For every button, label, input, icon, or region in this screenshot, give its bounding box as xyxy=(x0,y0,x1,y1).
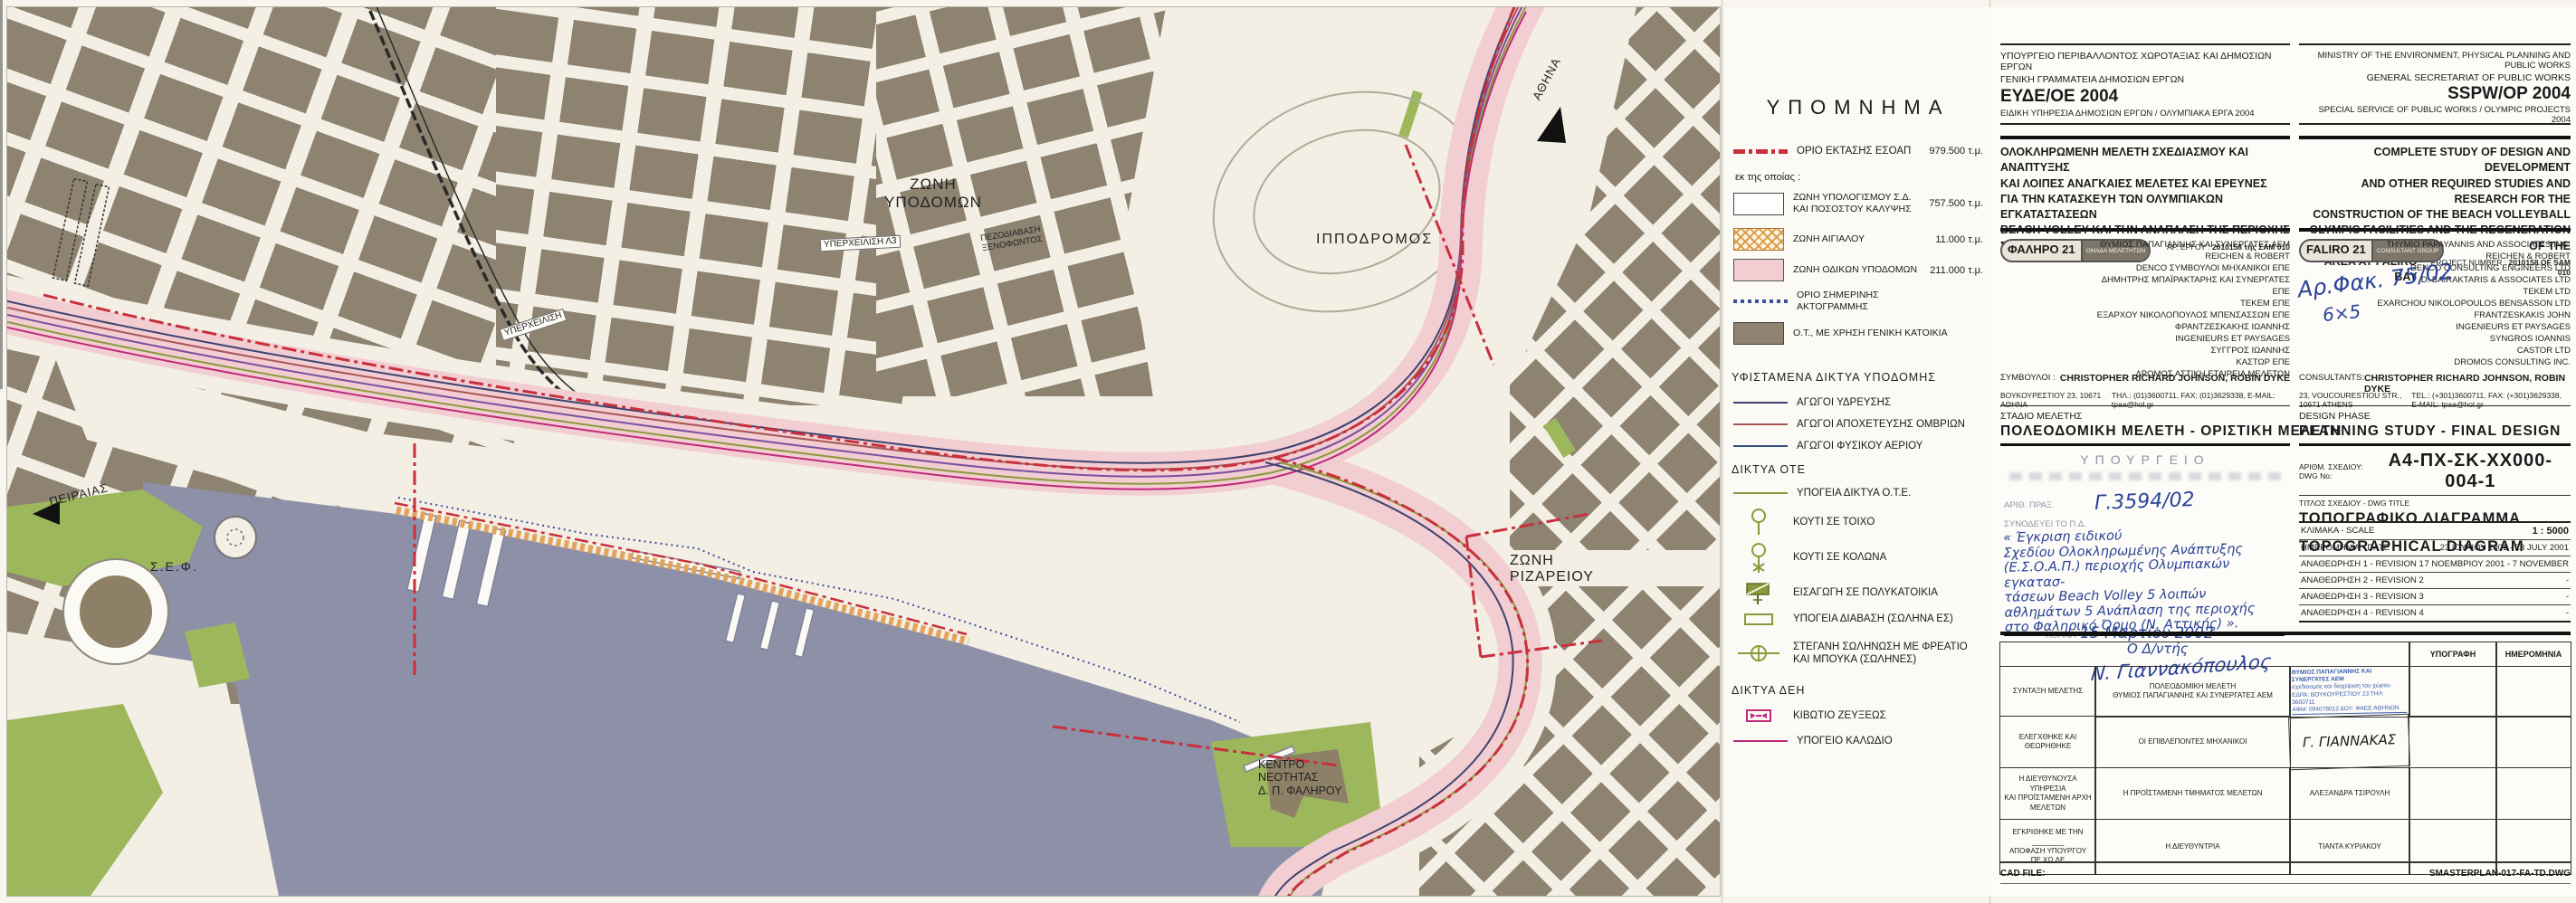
pink-zone-swatch xyxy=(1733,259,1784,281)
approval-praxis-row: ΑΡΙΘ. ΠΡΑΞ. Γ.3594/02 xyxy=(2004,490,2195,513)
ote-line-swatch xyxy=(1733,492,1788,494)
blue-dotted-swatch xyxy=(1733,299,1788,303)
row1-label: ΣΥΝΤΑΞΗ ΜΕΛΕΤΗΣ xyxy=(1999,666,2095,717)
address-row-gr: ΒΟΥΚΟΥΡΕΣΤΙΟΥ 23, 10671 ΑΘΗΝΑ ΤΗΛ.: (01)… xyxy=(2000,391,2290,409)
map-label-youth-center: ΚΕΝΤΡΟ ΝΕΟΤΗΤΑΣ Δ. Π. ΦΑΛΗΡΟΥ xyxy=(1258,758,1342,797)
revision-row-4: ΑΝΑΘΕΩΡΗΣΗ 4 - REVISION 4- xyxy=(2299,605,2571,623)
deh-cable-swatch xyxy=(1733,740,1788,742)
dwg-no-label-en: DWG No: xyxy=(2299,471,2363,480)
title-block: ΥΠΟΥΡΓΕΙΟ ΠΕΡΙΒΑΛΛΟΝΤΟΣ ΧΩΡΟΤΑΞΙΑΣ ΚΑΙ Δ… xyxy=(1991,7,2576,896)
roundabout xyxy=(215,517,256,558)
stage-value-gr: ΠΟΛΕΟΔΟΜΙΚΗ ΜΕΛΕΤΗ - ΟΡΙΣΤΙΚΗ ΜΕΛΕΤΗ xyxy=(2000,423,2342,440)
map-label-infrastructure-zone: ΖΩΝΗ ΥΠΟΔΟΜΩΝ xyxy=(865,176,1001,211)
map-drawing xyxy=(7,7,1720,896)
approval-stamp-title: ΥΠΟΥΡΓΕΙΟ xyxy=(2000,452,2290,467)
revision-row-1: ΑΝΑΘΕΩΡΗΣΗ 1 - REVISION 17 ΝΟΕΜΒΡΙΟΥ 200… xyxy=(2299,556,2571,573)
legend-section-deh: ΔΙΚΤΥΑ ΔΕΗ xyxy=(1732,684,1805,697)
col-date: ΗΜΕΡΟΜΗΝΙΑ xyxy=(2495,642,2571,667)
legend-section-ote: ΔΙΚΤΥΑ ΟΤΕ xyxy=(1732,463,1806,476)
dwg-no-label-gr: ΑΡΙΘΜ. ΣΧΕΔΙΟΥ: xyxy=(2299,462,2363,471)
storm-line-swatch xyxy=(1733,423,1788,425)
map-label-rizareiou-zone: ΖΩΝΗ ΡΙΖΑΡΕΙΟΥ xyxy=(1510,553,1594,586)
gas-line-swatch xyxy=(1733,445,1788,447)
row1-role: ΠΟΛΕΟΔΟΜΙΚΗ ΜΕΛΕΤΗ ΘΥΜΙΟΣ ΠΑΠΑΓΙΑΝΝΗΣ ΚΑ… xyxy=(2094,666,2290,717)
red-dashdot-swatch xyxy=(1733,149,1788,154)
legend-item-underpass: ΥΠΟΓΕΙΑ ΔΙΑΒΑΣΗ (ΣΩΛΗΝΑ ΕΣ) xyxy=(1733,612,1983,626)
phase-value-en: PLANNING STUDY - FINAL DESIGN xyxy=(2299,423,2561,440)
consultant-list-en: THYMIO PAPAYANNIS AND ASSOCIATES INC.REI… xyxy=(2371,239,2571,368)
project-block-gr: ΟΛΟΚΛΗΡΩΜΕΝΗ ΜΕΛΕΤΗ ΣΧΕΔΙΑΣΜΟΥ ΚΑΙ ΑΝΑΠΤ… xyxy=(2000,145,2290,254)
address-row-en: 23, VOUCOURESTIOU STR., 10671 ATHENS TEL… xyxy=(2299,391,2571,409)
legend-item-pole-box: ΚΟΥΤΙ ΣΕ ΚΟΛΩΝΑ xyxy=(1733,541,1983,574)
row1-company-stamp: ΘΥΜΙΟΣ ΠΑΠΑΓΙΑΝΝΗΣ ΚΑΙ ΣΥΝΕΡΓΑΤΕΣ ΑΕΜ σχ… xyxy=(2289,666,2409,717)
cad-file-row: CAD FILE: SMASTERPLAN-017-FA-TD.DWG xyxy=(2000,861,2571,884)
junction-box-icon xyxy=(1733,708,1784,724)
map-label-hippodrome: ΙΠΠΟΔΡΟΜΟΣ xyxy=(1316,232,1433,248)
pole-box-icon xyxy=(1733,542,1784,573)
handwritten-praxis-no: Γ.3594/02 xyxy=(2094,489,2195,515)
stage-label-gr: ΣΤΑΔΙΟ ΜΕΛΕΤΗΣ xyxy=(2000,411,2082,422)
legend-item-wall-box: ΚΟΥΤΙ ΣΕ ΤΟΙΧΟ xyxy=(1733,507,1983,537)
handwritten-approval-text: « Έγκριση ειδικούΣχεδίου Ολοκληρωμένης Α… xyxy=(2003,526,2295,635)
col-signature: ΥΠΟΓΡΑΦΗ xyxy=(2409,642,2496,667)
sef-stadium xyxy=(63,559,168,664)
signature-table: ΥΠΟΓΡΑΦΗ ΗΜΕΡΟΜΗΝΙΑ ΣΥΝΤΑΞΗ ΜΕΛΕΤΗΣ ΠΟΛΕ… xyxy=(2000,642,2571,874)
consultant-list-gr: ΘΥΜΙΟΣ ΠΑΠΑΓΙΑΝΝΗΣ ΚΑΙ ΣΥΝΕΡΓΑΤΕΣ ΑΕΜREI… xyxy=(2091,239,2290,380)
row2-handwritten-name: Γ. ΓΙΑΝΝΑΚΑΣ xyxy=(2288,714,2410,771)
date-row: ΗΜΕΡΟΜΗΝΙΑ - DATE23 ΙΟΥΛΙΟΥ 2001 - 23 JU… xyxy=(2299,540,2571,556)
ministry-block-en: MINISTRY OF THE ENVIRONMENT, PHYSICAL PL… xyxy=(2299,51,2571,125)
water-line-swatch xyxy=(1733,402,1788,404)
legend-section-networks: ΥΦΙΣΤΑΜΕΝΑ ΔΙΚΤΥΑ ΥΠΟΔΟΜΗΣ xyxy=(1732,371,1936,384)
scale-row: ΚΛΙΜΑΚΑ - SCALE1 : 5000 xyxy=(2299,523,2571,540)
row2-label: ΕΛΕΓΧΘΗΚΕ ΚΑΙ ΘΕΩΡΗΘΗΚΕ xyxy=(1999,716,2095,768)
legend-item-gas: ΑΓΩΓΟΙ ΦΥΣΙΚΟΥ ΑΕΡΙΟΥ xyxy=(1733,440,1983,452)
building-entry-icon xyxy=(1733,581,1784,604)
legend-item-zone-roads: ΖΩΝΗ ΟΔΙΚΩΝ ΥΠΟΔΟΜΩΝ 211.000 τ.μ. xyxy=(1733,259,1983,281)
revision-row-2: ΑΝΑΘΕΩΡΗΣΗ 2 - REVISION 2- xyxy=(2299,573,2571,589)
revision-table: ΚΛΙΜΑΚΑ - SCALE1 : 5000 ΗΜΕΡΟΜΗΝΙΑ - DAT… xyxy=(2299,521,2571,623)
legend-item-esoap-boundary: ΟΡΙΟ ΕΚΤΑΣΗΣ ΕΣΟΑΠ 979.500 τ.μ. xyxy=(1733,145,1983,157)
legend-title: ΥΠΟΜΝΗΜΑ xyxy=(1724,96,1992,119)
row3-role: Η ΠΡΟΪΣΤΑΜΕΝΗ ΤΜΗΜΑΤΟΣ ΜΕΛΕΤΩΝ xyxy=(2094,767,2290,820)
wall-box-icon xyxy=(1733,508,1784,537)
scan-edge-artifact xyxy=(0,0,3,389)
fold-line-left xyxy=(1722,0,1722,903)
hatch-zone-swatch xyxy=(1733,228,1784,251)
sealed-pipe-icon xyxy=(1733,644,1784,662)
row3-label: Η ΔΙΕΥΘΥΝΟΥΣΑ ΥΠΗΡΕΣΙΑ ΚΑΙ ΠΡΟΪΣΤΑΜΕΝΗ Α… xyxy=(1999,767,2095,820)
legend-item-residential: Ο.Τ., ΜΕ ΧΡΗΣΗ ΓΕΝΙΚΗ ΚΑΤΟΙΚΙΑ xyxy=(1733,322,1983,345)
legend-item-zone-aigialou: ΖΩΝΗ ΑΙΓΙΑΛΟΥ 11.000 τ.μ. xyxy=(1733,228,1983,251)
legend-item-sealed-pipe: ΣΤΕΓΑΝΗ ΣΩΛΗΝΩΣΗ ΜΕ ΦΡΕΑΤΙΟ ΚΑΙ ΜΠΟΥΚΑ (… xyxy=(1733,635,1983,671)
approval-synodeuei-label: ΣΥΝΟΔΕΥΕΙ ΤΟ Π.Δ. xyxy=(2004,519,2086,529)
revision-row-3: ΑΝΑΘΕΩΡΗΣΗ 3 - REVISION 3- xyxy=(2299,589,2571,605)
row2-role: ΟΙ ΕΠΙΒΛΕΠΟΝΤΕΣ ΜΗΧΑΝΙΚΟΙ xyxy=(2094,716,2290,768)
legend-item-junction-box: ΚΙΒΩΤΙΟ ΖΕΥΞΕΩΣ xyxy=(1733,708,1983,724)
white-zone-swatch xyxy=(1733,193,1784,215)
row3-name: ΑΛΕΞΑΝΔΡΑ ΤΣΙΡΟΥΛΗ xyxy=(2289,767,2409,820)
approval-stamp-blur-line xyxy=(2009,472,2281,480)
underpass-icon xyxy=(1733,612,1784,626)
handwritten-file-note: 6×5 xyxy=(2322,300,2361,326)
dwg-title-label: ΤΙΤΛΟΣ ΣΧΕΔΙΟΥ - DWG TITLE xyxy=(2299,499,2571,508)
legend-item-coastline: ΟΡΙΟ ΣΗΜΕΡΙΝΗΣ ΑΚΤΟΓΡΑΜΜΗΣ xyxy=(1733,290,1983,313)
map-label-sef: Σ.Ε.Φ. xyxy=(150,559,198,574)
legend-item-underground-cable: ΥΠΟΓΕΙΟ ΚΑΛΩΔΙΟ xyxy=(1733,735,1983,747)
legend-item-storm: ΑΓΩΓΟΙ ΑΠΟΧΕΤΕΥΣΗΣ ΟΜΒΡΙΩΝ xyxy=(1733,418,1983,431)
cad-file-label: CAD FILE: xyxy=(2000,869,2045,879)
topographic-map: ΖΩΝΗ ΥΠΟΔΟΜΩΝ ΥΠΕΡΧΕΙΛΙΣΗ Λ3 ΥΠΕΡΧΕΙΛΙΣΗ… xyxy=(7,7,1720,896)
dwg-number: Α4-ΠΧ-ΣΚ-ΧΧ000-004-1 xyxy=(2371,451,2571,492)
cad-file-value: SMASTERPLAN-017-FA-TD.DWG xyxy=(2429,869,2571,879)
phase-label-en: DESIGN PHASE xyxy=(2299,411,2371,422)
legend-item-ote-underground: ΥΠΟΓΕΙΑ ΔΙΚΤΥΑ Ο.Τ.Ε. xyxy=(1733,487,1983,499)
brown-block-swatch xyxy=(1733,322,1784,345)
legend-panel: ΕΘΝΙΚΟ ΤΥΠΟΓΡΑΦΕΙΟ Για τεχνικούς λόγους … xyxy=(1724,7,1992,896)
ministry-block-gr: ΥΠΟΥΡΓΕΙΟ ΠΕΡΙΒΑΛΛΟΝΤΟΣ ΧΩΡΟΤΑΞΙΑΣ ΚΑΙ Δ… xyxy=(2000,51,2290,119)
consultants-row-gr: ΣΥΜΒΟΥΛΟΙ : CHRISTOPHER RICHARD JOHNSON,… xyxy=(2000,373,2290,384)
legend-subnote: εκ της οποίας : xyxy=(1735,172,1800,183)
legend-item-water: ΑΓΩΓΟΙ ΥΔΡΕΥΣΗΣ xyxy=(1733,396,1983,409)
legend-item-building-entry: ΕΙΣΑΓΩΓΗ ΣΕ ΠΟΛΥΚΑΤΟΙΚΙΑ xyxy=(1733,579,1983,606)
legend-item-zone-sd: ΖΩΝΗ ΥΠΟΛΟΓΙΣΜΟΥ Σ.Δ. ΚΑΙ ΠΟΣΟΣΤΟΥ ΚΑΛΥΨ… xyxy=(1733,192,1983,215)
